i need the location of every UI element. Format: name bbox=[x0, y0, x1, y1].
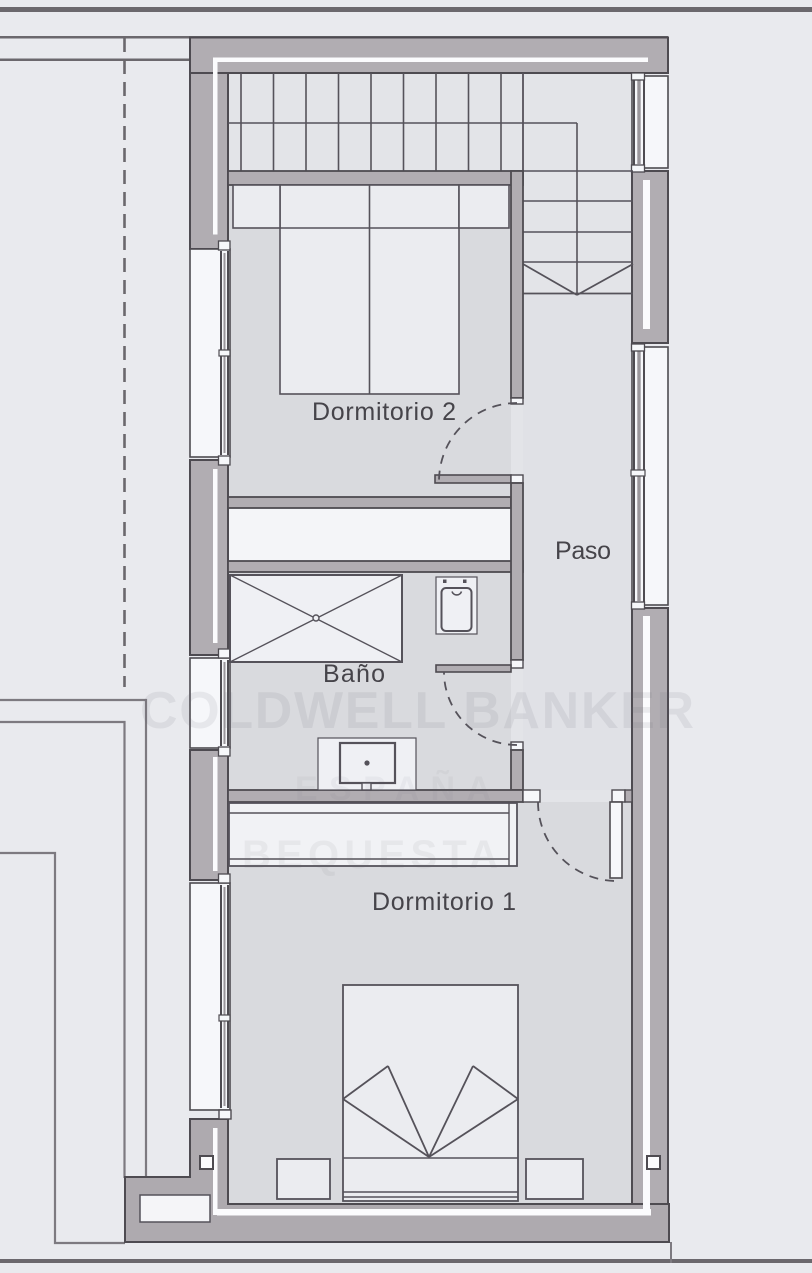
svg-text:COLDWELL BANKER: COLDWELL BANKER bbox=[140, 682, 700, 740]
svg-text:Dormitorio 1: Dormitorio 1 bbox=[372, 888, 516, 916]
svg-text:Dormitorio 2: Dormitorio 2 bbox=[312, 398, 456, 426]
svg-text:BEQUESTA: BEQUESTA bbox=[242, 833, 502, 877]
svg-text:Baño: Baño bbox=[323, 660, 385, 688]
svg-text:Paso: Paso bbox=[555, 537, 611, 565]
